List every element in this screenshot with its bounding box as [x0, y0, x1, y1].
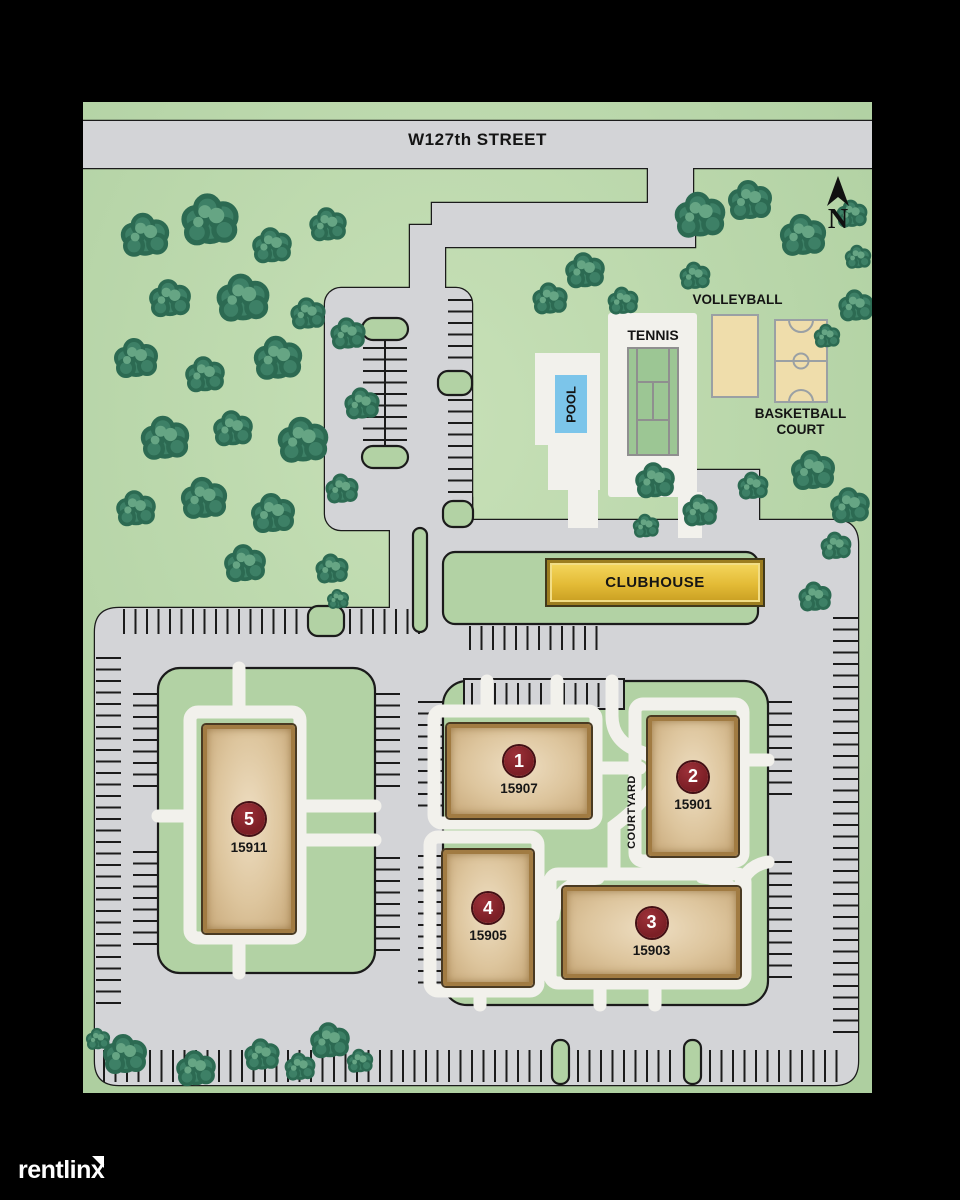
building-5: 5 15911 [203, 725, 295, 933]
volleyball-label: VOLLEYBALL [655, 292, 820, 307]
basketball-label: BASKETBALL COURT [718, 406, 883, 438]
courtyard-label: COURTYARD [626, 757, 638, 867]
building-4: 4 15905 [443, 850, 533, 986]
building-5-address: 15911 [231, 840, 268, 855]
clubhouse-building: CLUBHOUSE [547, 560, 763, 605]
building-4-address: 15905 [469, 928, 507, 943]
site-map-graphic: .rd{fill:#d3d4d7;stroke:#1b1b1b;stroke-w… [0, 0, 960, 1200]
rentlinx-logo-arrow-icon [92, 1156, 104, 1168]
site-map: .rd{fill:#d3d4d7;stroke:#1b1b1b;stroke-w… [0, 0, 960, 1200]
building-3-number-badge: 3 [637, 908, 667, 938]
clubhouse-label: CLUBHOUSE [605, 574, 705, 591]
building-1-number-badge: 1 [504, 746, 534, 776]
tennis-label: TENNIS [598, 327, 708, 343]
building-2-address: 15901 [674, 797, 712, 812]
street-label: W127th STREET [83, 130, 872, 150]
building-3-address: 15903 [633, 943, 671, 958]
basketball-label-line2: COURT [777, 422, 825, 437]
building-4-number-badge: 4 [473, 893, 503, 923]
building-5-number-badge: 5 [233, 803, 265, 835]
building-2-number-badge: 2 [678, 762, 708, 792]
building-2: 2 15901 [648, 717, 738, 856]
basketball-label-line1: BASKETBALL [755, 406, 847, 421]
building-1-address: 15907 [500, 781, 538, 796]
building-1: 1 15907 [447, 724, 591, 818]
compass-north-label: N [820, 204, 856, 236]
pool-label: POOL [564, 375, 579, 435]
building-3: 3 15903 [563, 887, 740, 978]
